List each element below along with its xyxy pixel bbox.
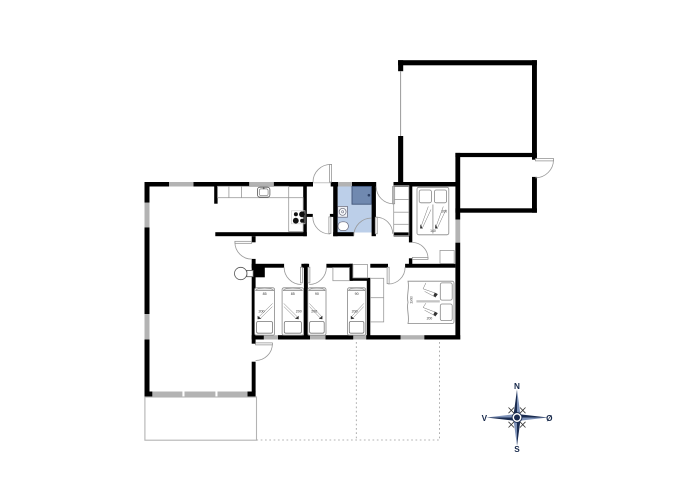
svg-text:200: 200 [311,309,317,313]
svg-text:200: 200 [441,210,447,214]
svg-text:200: 200 [352,309,358,313]
svg-text:200: 200 [427,316,433,320]
svg-text:140: 140 [430,229,436,233]
svg-text:90: 90 [355,292,359,296]
svg-text:2x90: 2x90 [409,296,413,303]
svg-text:85: 85 [263,292,267,296]
svg-text:Ø: Ø [546,414,553,423]
svg-text:N: N [514,382,520,391]
svg-text:V: V [482,414,488,423]
svg-text:S: S [514,445,520,454]
svg-text:200: 200 [296,309,302,313]
svg-text:90: 90 [315,292,319,296]
svg-text:200: 200 [259,309,265,313]
svg-text:85: 85 [291,292,295,296]
